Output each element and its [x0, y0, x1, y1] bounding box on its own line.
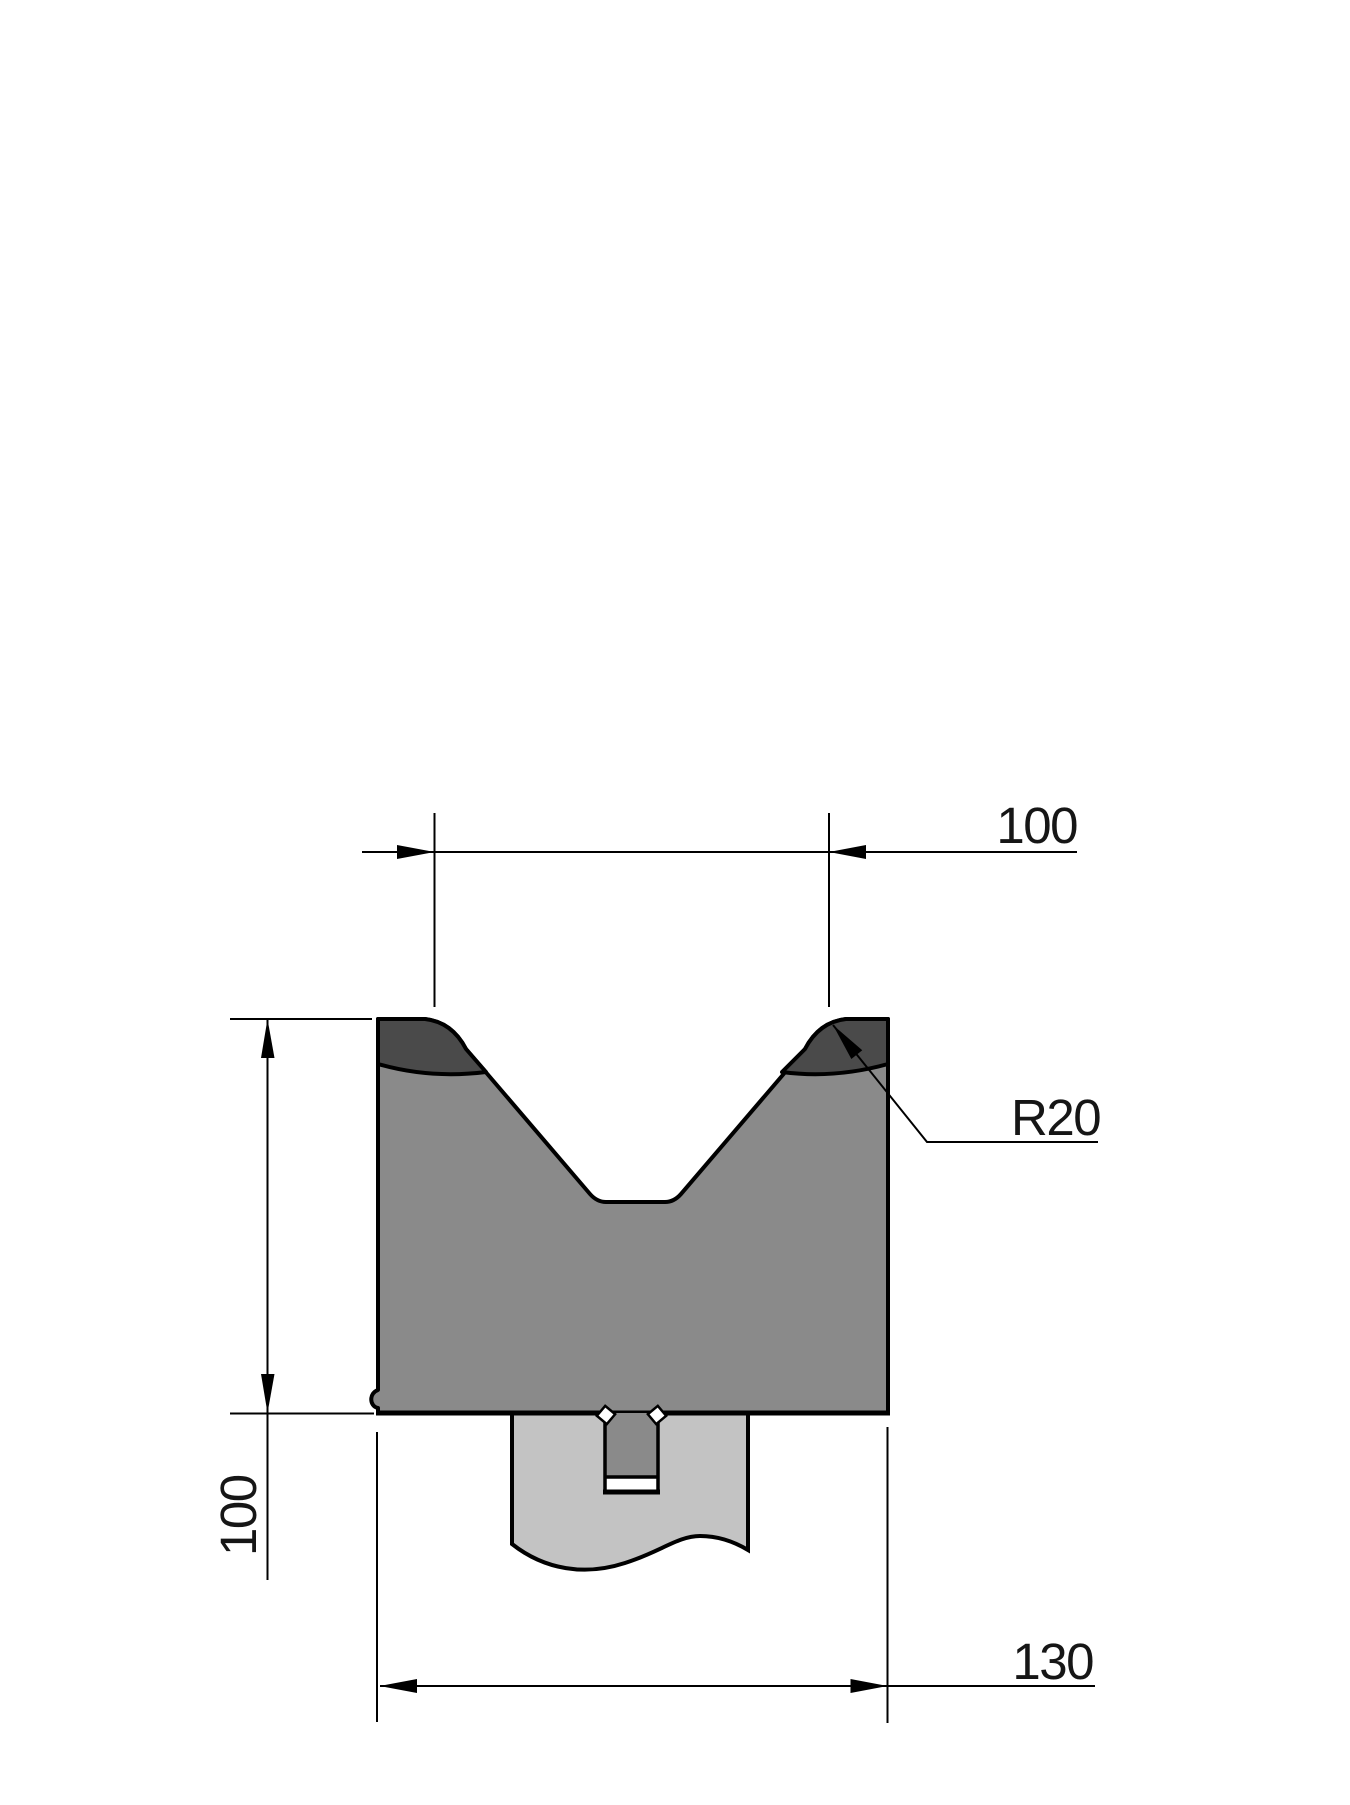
drawing-canvas: 100 100 130 R20 — [0, 0, 1350, 1800]
dim-bottom-width-label: 130 — [1012, 1633, 1093, 1690]
arrowhead-bottom — [261, 1374, 275, 1413]
dim-height-label: 100 — [210, 1475, 267, 1556]
dim-height: 100 — [210, 1019, 374, 1580]
arrowhead-left — [397, 845, 435, 859]
dim-top-width: 100 — [362, 797, 1077, 1007]
arrowhead-right — [851, 1679, 888, 1693]
slot-clearance-gap — [605, 1478, 658, 1491]
die-body — [371, 1019, 888, 1413]
arrowhead-right — [829, 845, 866, 859]
arrowhead-left — [380, 1679, 417, 1693]
arrowhead-top — [261, 1019, 275, 1058]
technical-drawing: 100 100 130 R20 — [0, 0, 1350, 1800]
dim-top-width-label: 100 — [996, 797, 1077, 854]
radius-callout-label: R20 — [1011, 1089, 1100, 1146]
hardened-zone-left — [378, 1019, 486, 1074]
tang-in-slot — [605, 1413, 658, 1478]
